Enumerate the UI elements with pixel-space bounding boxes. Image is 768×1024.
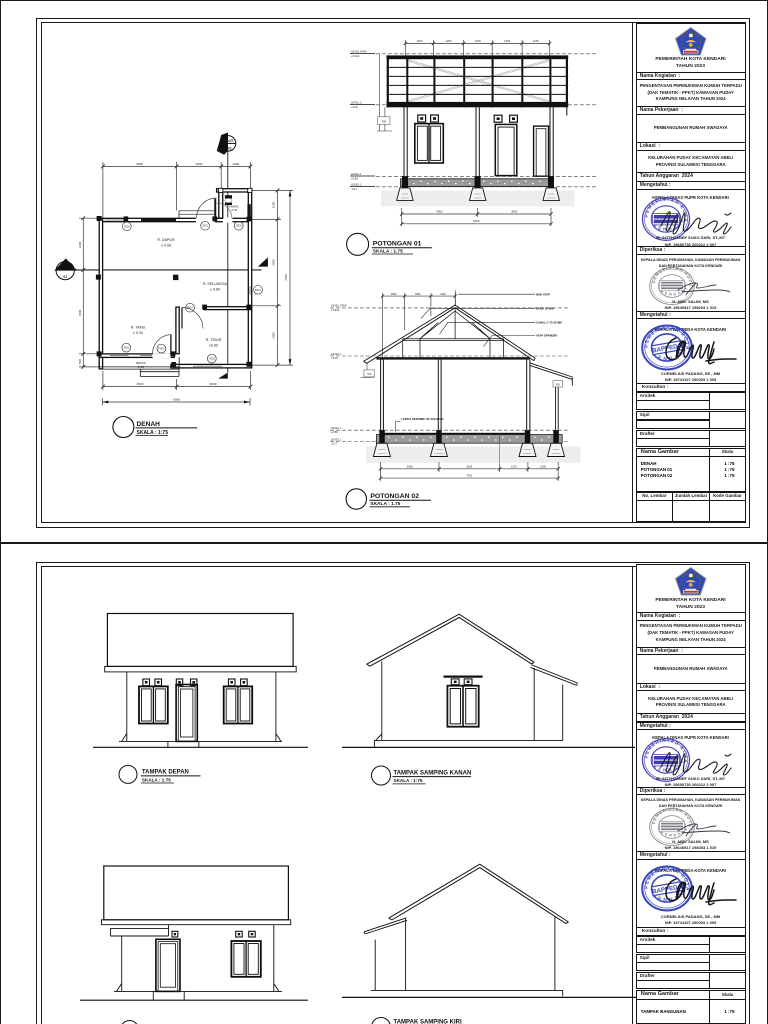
svg-text:1200: 1200 (272, 201, 276, 208)
svg-text:TAMPAK SAMPING KANAN: TAMPAK SAMPING KANAN (394, 770, 472, 776)
svg-text:LEVEL 1: LEVEL 1 (351, 183, 362, 187)
svg-text:2425: 2425 (466, 464, 472, 468)
svg-text:SKALA : 1.75: SKALA : 1.75 (370, 501, 400, 507)
svg-text:1100: 1100 (417, 39, 423, 43)
svg-text:3500: 3500 (78, 309, 82, 316)
svg-text:1200: 1200 (232, 162, 239, 166)
svg-text:3000: 3000 (511, 209, 518, 213)
svg-text:R. DAPUR: R. DAPUR (157, 238, 175, 242)
svg-text:1200: 1200 (446, 39, 452, 43)
svg-text:-0.05: -0.05 (137, 365, 144, 369)
svg-text:3600: 3600 (272, 259, 276, 266)
svg-text:7180: 7180 (284, 274, 288, 281)
svg-text:1175: 1175 (511, 464, 517, 468)
svg-text:TAMPAK DEPAN: TAMPAK DEPAN (142, 770, 189, 776)
svg-text:6000: 6000 (173, 398, 180, 402)
svg-text:2400: 2400 (272, 332, 276, 339)
svg-text:500: 500 (78, 359, 82, 364)
svg-text:JND2: JND2 (124, 225, 131, 228)
svg-text:JND1: JND1 (202, 225, 209, 228)
svg-text:LEVEL ATAP: LEVEL ATAP (351, 50, 367, 54)
svg-text:2400: 2400 (407, 464, 413, 468)
svg-text:6000: 6000 (473, 219, 480, 223)
svg-text:± 0.80: ± 0.80 (210, 288, 220, 292)
svg-text:LEVEL 1: LEVEL 1 (331, 437, 342, 441)
svg-text:3000: 3000 (210, 382, 217, 386)
svg-text:3000: 3000 (136, 162, 143, 166)
svg-text:R. TAMU: R. TAMU (131, 326, 146, 330)
svg-text:PND1: PND1 (187, 307, 194, 310)
svg-text:JND2: JND2 (123, 347, 130, 350)
svg-text:1500: 1500 (440, 293, 446, 296)
svg-text:CANAL C 75.35 MM: CANAL C 75.35 MM (536, 320, 562, 324)
svg-text:TAMPAK SAMPING KIRI: TAMPAK SAMPING KIRI (394, 1019, 462, 1024)
svg-text:1200: 1200 (540, 464, 546, 468)
svg-text:SKALA : 1:75: SKALA : 1:75 (142, 777, 171, 782)
svg-text:+0.80: +0.80 (351, 176, 358, 180)
svg-text:POTONGAN 02: POTONGAN 02 (370, 493, 419, 500)
svg-text:1105: 1105 (533, 39, 539, 43)
svg-text:+5.813: +5.813 (331, 308, 340, 312)
svg-text:02: 02 (228, 147, 232, 151)
svg-text:R. KELUARGA: R. KELUARGA (203, 282, 228, 286)
svg-text:+0.80: +0.80 (331, 430, 338, 434)
svg-text:1800: 1800 (415, 293, 421, 296)
svg-text:SKALA : 1:75: SKALA : 1:75 (394, 778, 423, 783)
svg-text:-0.17: -0.17 (351, 187, 358, 191)
svg-text:NOK ATAP: NOK ATAP (536, 292, 550, 296)
svg-text:+6.012: +6.012 (351, 54, 360, 58)
svg-text:LEVEL ATAP: LEVEL ATAP (331, 304, 347, 308)
svg-text:R. TIDUR: R. TIDUR (206, 338, 222, 342)
svg-text:+3.00: +3.00 (351, 105, 358, 109)
svg-text:SKALA : 1.75: SKALA : 1.75 (373, 248, 403, 254)
svg-text:700: 700 (381, 119, 386, 123)
svg-text:DENAH: DENAH (137, 421, 161, 428)
svg-text:01: 01 (63, 275, 67, 279)
svg-text:JND1: JND1 (209, 358, 216, 361)
svg-text:POTONGAN 01: POTONGAN 01 (373, 240, 422, 247)
svg-text:3000: 3000 (137, 382, 144, 386)
svg-text:-0.05: -0.05 (231, 208, 238, 212)
svg-text:LEVEL 1: LEVEL 1 (331, 352, 342, 356)
svg-text:LEVEL 1: LEVEL 1 (331, 426, 342, 430)
svg-text:POT: POT (226, 139, 234, 143)
svg-text:+3.00: +3.00 (331, 356, 338, 360)
svg-text:1200: 1200 (475, 39, 481, 43)
svg-text:500: 500 (556, 383, 561, 386)
svg-text:LEVEL 1: LEVEL 1 (351, 172, 362, 176)
svg-text:2400: 2400 (78, 241, 82, 248)
svg-text:-0.17: -0.17 (331, 442, 338, 446)
svg-text:± 0.00: ± 0.00 (133, 331, 143, 335)
svg-text:7200: 7200 (466, 474, 472, 478)
svg-text:±0.80: ±0.80 (209, 344, 218, 348)
svg-text:1800: 1800 (391, 293, 397, 296)
svg-text:3000: 3000 (436, 209, 443, 213)
svg-text:RENG 30 MM: RENG 30 MM (536, 306, 554, 310)
svg-text:± 0.08: ± 0.08 (161, 244, 171, 248)
svg-text:BV01: BV01 (255, 289, 262, 292)
svg-text:PND2: PND2 (158, 348, 165, 351)
svg-text:LEVEL 2: LEVEL 2 (351, 101, 362, 105)
svg-text:ATAP SPANDEK: ATAP SPANDEK (536, 334, 557, 338)
svg-text:JND2: JND2 (236, 225, 243, 228)
svg-text:LANTAI KERAMIK UK 30x30 CM: LANTAI KERAMIK UK 30x30 CM (401, 417, 444, 421)
svg-text:1200: 1200 (504, 39, 510, 43)
svg-text:700: 700 (367, 372, 372, 376)
svg-text:1830: 1830 (195, 162, 202, 166)
